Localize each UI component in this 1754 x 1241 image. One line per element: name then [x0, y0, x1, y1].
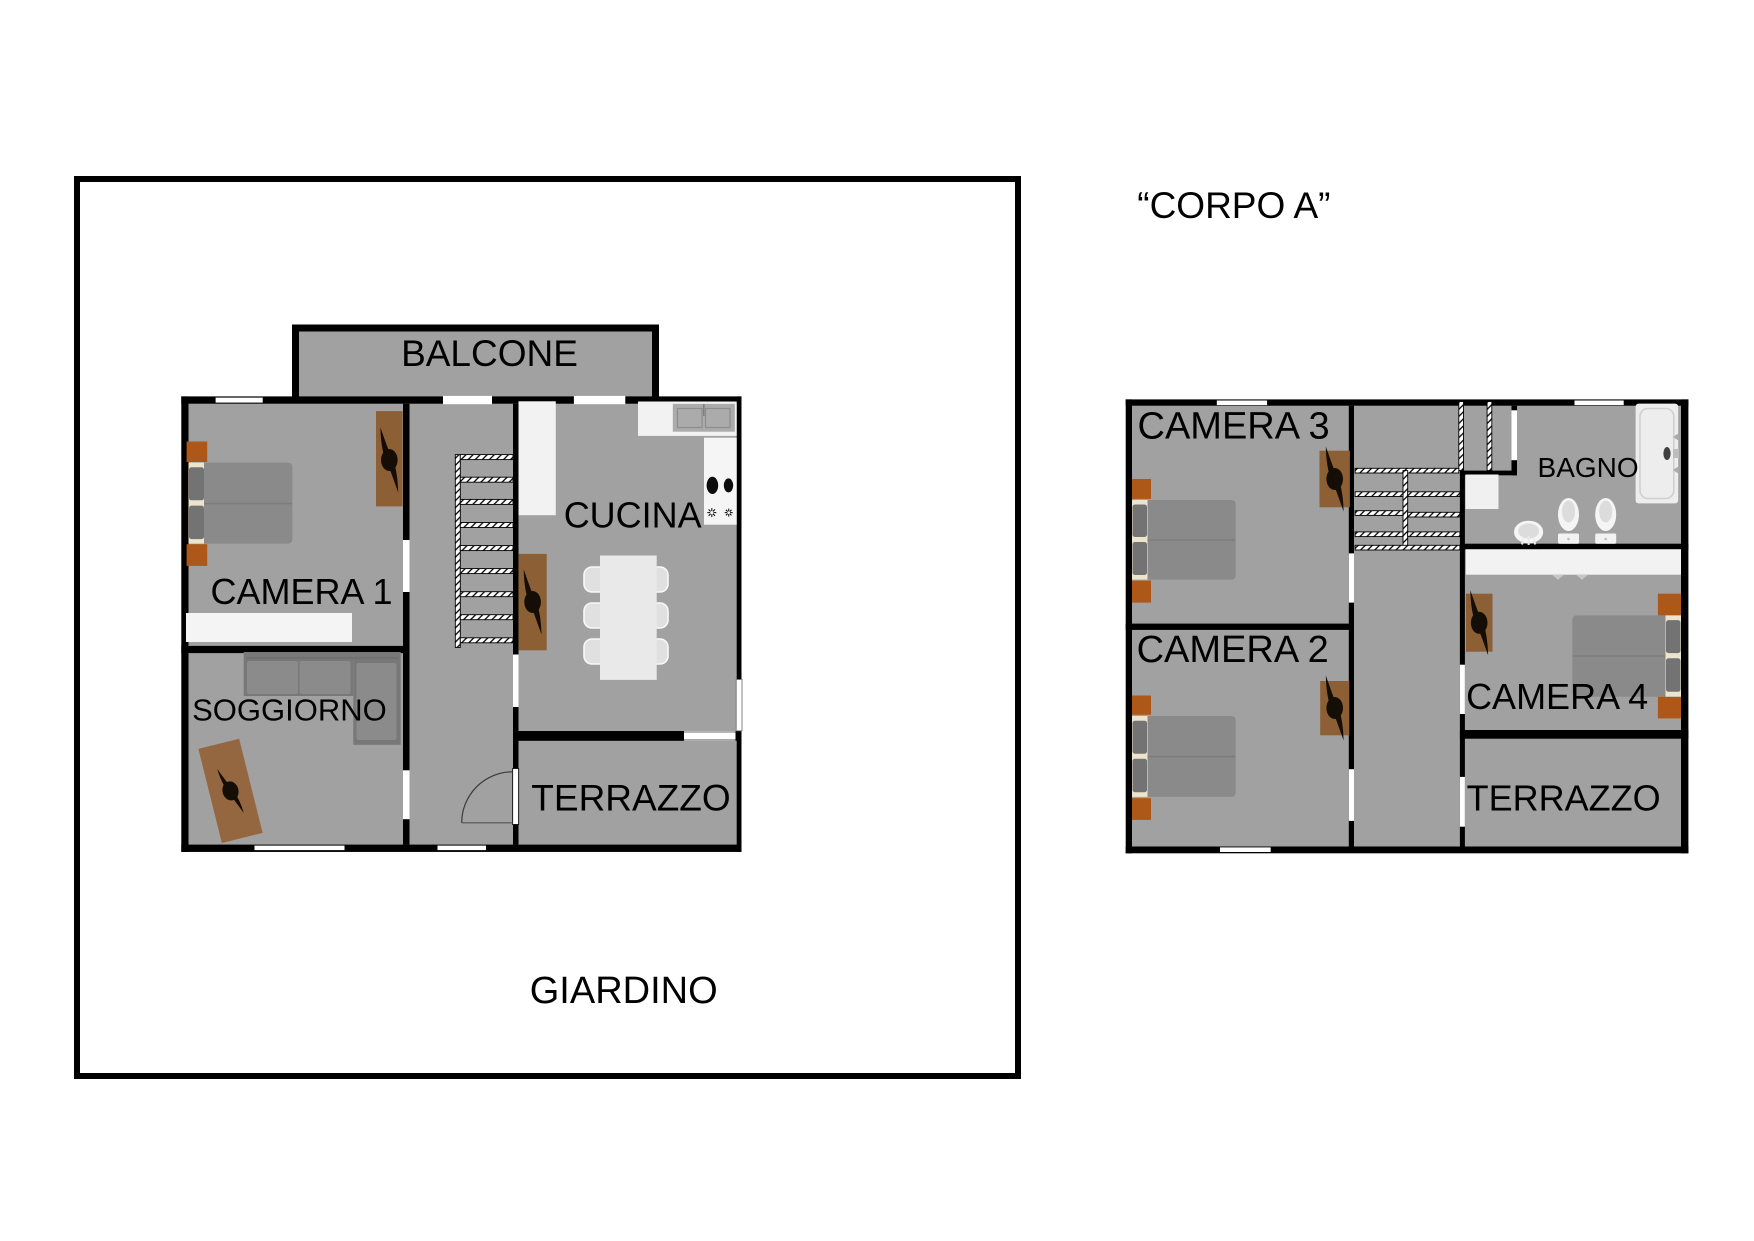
svg-text:SOGGIORNO: SOGGIORNO	[192, 693, 387, 728]
svg-text:BAGNO: BAGNO	[1538, 452, 1639, 483]
svg-text:CUCINA: CUCINA	[564, 495, 702, 536]
svg-text:“CORPO A”: “CORPO A”	[1137, 185, 1330, 226]
svg-text:BALCONE: BALCONE	[401, 333, 578, 374]
svg-text:TERRAZZO: TERRAZZO	[531, 778, 730, 819]
svg-text:CAMERA 1: CAMERA 1	[210, 571, 392, 612]
svg-text:CAMERA 4: CAMERA 4	[1466, 676, 1648, 717]
svg-text:GIARDINO: GIARDINO	[530, 970, 718, 1012]
svg-text:CAMERA 2: CAMERA 2	[1137, 629, 1329, 671]
svg-text:CAMERA 3: CAMERA 3	[1138, 406, 1330, 448]
svg-text:TERRAZZO: TERRAZZO	[1467, 777, 1661, 818]
